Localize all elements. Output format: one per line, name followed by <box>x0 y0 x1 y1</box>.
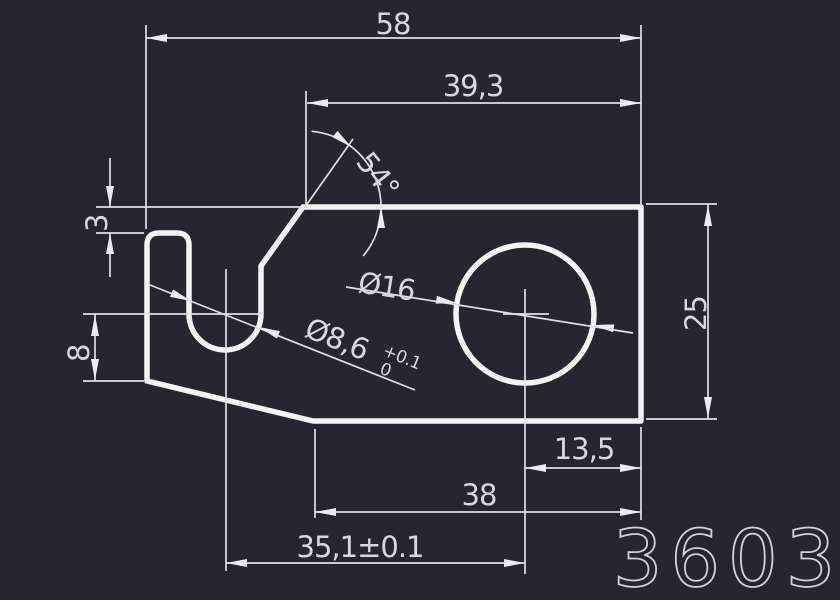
dim-top-width-label: 39,3 <box>443 69 504 103</box>
dim-ledge-depth-label: 3 <box>80 215 114 232</box>
cad-drawing-canvas: 58 39,3 54° 3 8 Ø16 <box>0 0 840 600</box>
dim-slot-to-hole-distance-label: 35,1±0.1 <box>297 530 424 564</box>
drawing-background <box>0 0 840 600</box>
dim-bottom-width-label: 38 <box>462 478 497 512</box>
dim-slot-center-height-label: 8 <box>62 345 96 362</box>
dim-plate-height-label: 25 <box>679 296 713 331</box>
dim-hole-to-right-edge-label: 13,5 <box>554 432 615 466</box>
dim-total-width-label: 58 <box>376 7 411 41</box>
part-number-label: 3603 <box>613 515 840 600</box>
